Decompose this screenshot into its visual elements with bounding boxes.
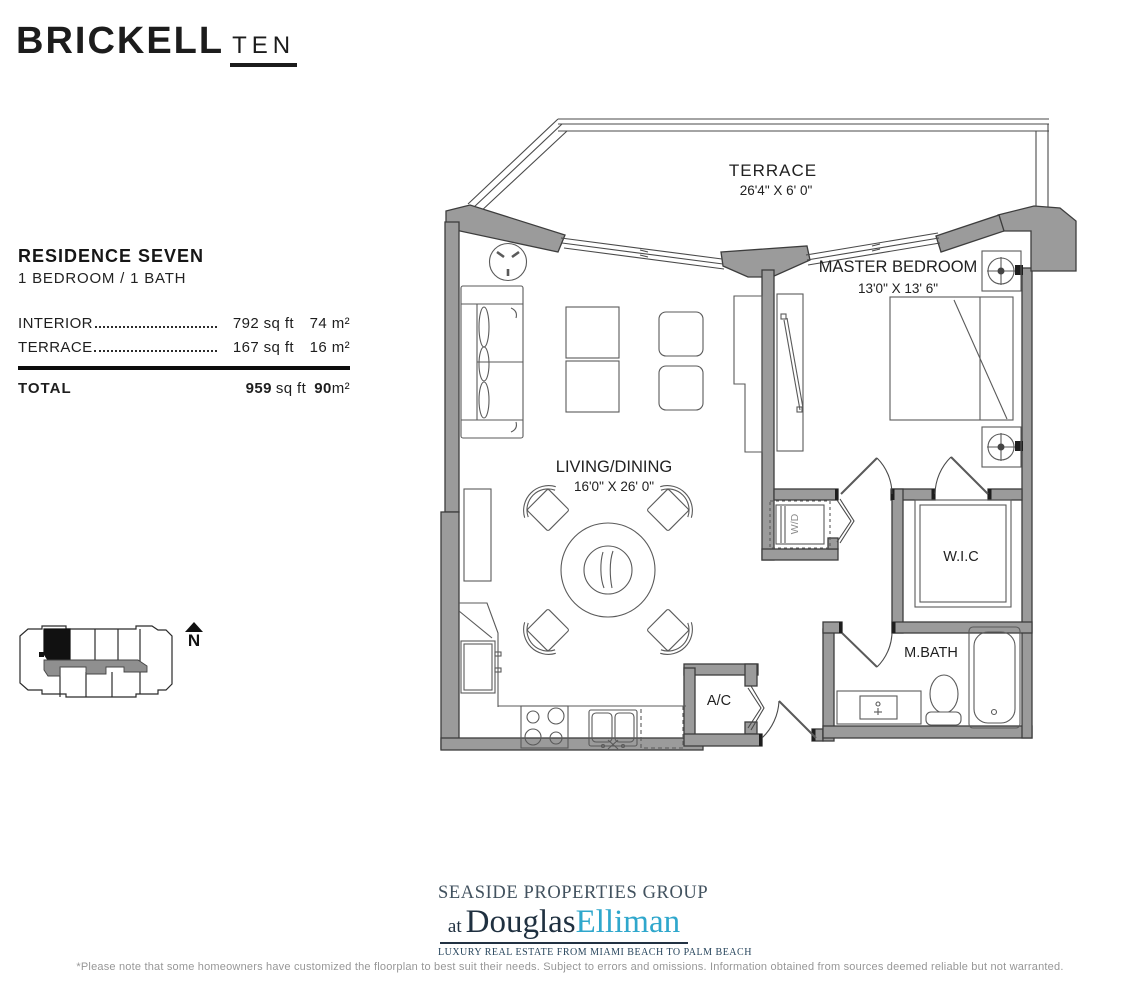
wd-label: W/D [789,513,801,534]
coffee-tables [566,307,619,412]
toilet-icon [926,675,961,725]
area-sqm: 74 m² [294,315,350,332]
brokerage-name: atDouglasElliman [438,905,690,940]
mbath-label: M.BATH [904,645,958,661]
area-sqft: 792 sq ft [220,315,294,332]
bath-fixtures [837,627,1020,728]
floorplan: TERRACE 26'4" X 6' 0" MASTER BEDROOM 13'… [430,90,1140,790]
plant-icon [490,244,527,281]
entry-door [762,701,816,738]
master-bedroom-dims: 13'0" X 13' 6" [858,281,938,296]
total-sqft-value: 959 [246,380,272,397]
refrigerator-icon [461,641,501,693]
floorplan-drawing: TERRACE 26'4" X 6' 0" MASTER BEDROOM 13'… [430,90,1140,790]
area-sqm: 16 m² [294,339,350,356]
area-row-terrace: TERRACE 167 sq ft 16 m² [18,339,350,356]
tv-console [734,296,762,452]
brokerage-group-name: SEASIDE PROPERTIES GROUP [438,883,690,904]
brand-suffix: TEN [230,32,297,67]
area-label: INTERIOR [18,315,93,332]
total-row: TOTAL 959 sq ft 90 m² [18,380,350,397]
residence-title: RESIDENCE SEVEN [18,246,350,267]
highlighted-unit [44,629,70,660]
brokerage-name-last: Elliman [576,904,680,940]
dresser-tv [777,294,803,451]
brand-logo: BRICKELL TEN [16,20,297,67]
wd-bifold-door [837,499,854,543]
ac-label: A/C [707,693,731,709]
bath-door [842,633,892,667]
area-sqft: 167 sq ft [220,339,294,356]
area-table: INTERIOR 792 sq ft 74 m² TERRACE 167 sq … [18,315,350,356]
area-row-interior: INTERIOR 792 sq ft 74 m² [18,315,350,332]
north-label: N [183,632,205,651]
residence-subtitle: 1 BEDROOM / 1 BATH [18,270,350,287]
brokerage-logo: SEASIDE PROPERTIES GROUP atDouglasEllima… [438,883,690,958]
sofa [461,286,523,438]
brokerage-rule [440,942,688,944]
total-sqm-value: 90 [314,380,332,397]
dot-leader [95,326,217,328]
brokerage-at: at [448,916,462,937]
north-arrow: N [183,622,205,651]
dining-chairs [515,477,700,662]
living-dining-label: LIVING/DINING [556,458,672,476]
total-sqm-unit: m² [332,380,350,397]
vanity-sink-icon [837,691,921,724]
terrace-label: TERRACE [729,161,817,180]
total-sqft-unit: sq ft [276,380,306,397]
brand-name: BRICKELL [16,20,224,63]
master-bedroom-door [841,458,892,494]
total-divider [18,366,350,370]
living-furniture [461,244,762,663]
brokerage-name-first: Douglas [466,904,576,940]
terrace-dims: 26'4" X 6' 0" [740,183,813,198]
bathtub-icon [969,627,1020,728]
area-label: TERRACE [18,339,92,356]
exterior-walls [441,205,1076,750]
console-table [464,489,491,581]
master-bedroom-label: MASTER BEDROOM [819,258,978,276]
wic-door [935,457,988,494]
total-label: TOTAL [18,380,72,397]
dining-table [561,523,655,617]
wic-label: W.I.C [943,549,978,565]
disclaimer-note: *Please note that some homeowners have c… [0,961,1140,973]
residence-info-panel: RESIDENCE SEVEN 1 BEDROOM / 1 BATH INTER… [18,246,350,397]
ottomans [659,312,703,410]
living-dining-dims: 16'0" X 26' 0" [574,479,654,494]
brokerage-tagline: LUXURY REAL ESTATE FROM MIAMI BEACH TO P… [438,947,690,958]
dot-leader [94,350,217,352]
bed [890,297,1013,420]
